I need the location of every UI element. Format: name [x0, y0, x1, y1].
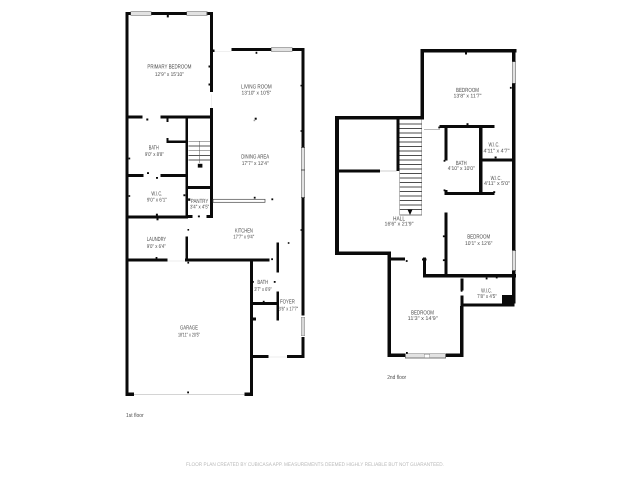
svg-text:3'6" x 17'7": 3'6" x 17'7"	[279, 307, 299, 313]
svg-text:BATH: BATH	[257, 279, 268, 286]
svg-text:12'9" x 15'10": 12'9" x 15'10"	[155, 72, 184, 78]
svg-text:11'3" x 14'9": 11'3" x 14'9"	[408, 316, 438, 322]
svg-text:DINING AREA: DINING AREA	[241, 154, 269, 161]
svg-text:10'1" x 12'6": 10'1" x 12'6"	[465, 241, 493, 247]
svg-text:BATH: BATH	[149, 145, 159, 152]
svg-text:18'11" x 20'5": 18'11" x 20'5"	[178, 333, 200, 339]
svg-text:GARAGE: GARAGE	[180, 324, 198, 331]
svg-text:LAUNDRY: LAUNDRY	[147, 236, 166, 243]
svg-text:FOYER: FOYER	[280, 298, 295, 305]
svg-text:2nd floor: 2nd floor	[387, 374, 406, 381]
svg-text:KITCHEN: KITCHEN	[235, 227, 253, 234]
svg-text:4'11" x 4'7": 4'11" x 4'7"	[484, 149, 510, 155]
svg-text:17'7" x 12'4": 17'7" x 12'4"	[242, 161, 269, 167]
svg-text:16'6" x 21'9": 16'6" x 21'9"	[385, 222, 414, 228]
svg-text:PRIMARY BEDROOM: PRIMARY BEDROOM	[147, 63, 191, 70]
svg-text:17'7" x 9'4": 17'7" x 9'4"	[233, 235, 254, 241]
svg-text:1st floor: 1st floor	[126, 412, 144, 419]
svg-text:9'0" x 6'4": 9'0" x 6'4"	[147, 244, 166, 250]
svg-text:4'10" x 10'0": 4'10" x 10'0"	[448, 166, 475, 172]
svg-text:BEDROOM: BEDROOM	[467, 233, 490, 240]
svg-text:13'10" x 10'5": 13'10" x 10'5"	[242, 91, 272, 97]
svg-text:7'8" x 4'5": 7'8" x 4'5"	[477, 294, 497, 300]
svg-text:9'0" x 8'8": 9'0" x 8'8"	[145, 152, 164, 158]
svg-text:4'11" x 5'0": 4'11" x 5'0"	[484, 181, 510, 187]
svg-text:FLOOR PLAN CREATED BY CUBICASA: FLOOR PLAN CREATED BY CUBICASA APP. MEAS…	[186, 462, 444, 468]
svg-text:3'4" x 4'5": 3'4" x 4'5"	[190, 205, 209, 211]
svg-text:9'0" x 6'1": 9'0" x 6'1"	[147, 198, 167, 204]
svg-text:13'8" x 11'7": 13'8" x 11'7"	[454, 94, 482, 100]
svg-text:3'7" x 6'9": 3'7" x 6'9"	[254, 287, 272, 293]
svg-text:LIVING ROOM: LIVING ROOM	[241, 83, 272, 90]
